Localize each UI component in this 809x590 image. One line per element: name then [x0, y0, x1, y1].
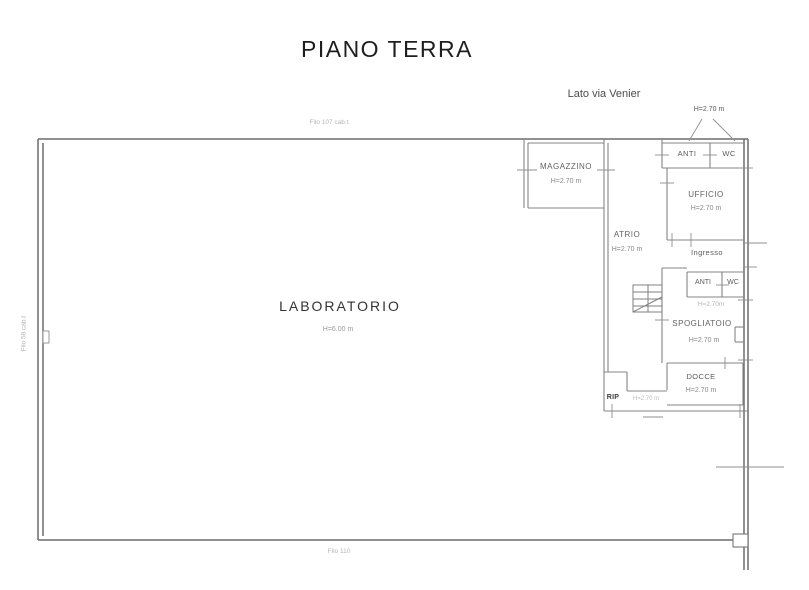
room-label-laboratorio: LABORATORIO — [279, 299, 401, 314]
height-note-mid-block: H=2.70m — [698, 301, 725, 308]
room-label-rip: RIP — [607, 394, 620, 402]
floor-plan-page: PIANO TERRA Lato via Venier H=2.70 m Fil… — [0, 0, 809, 590]
room-label-anti-mid: ANTI — [695, 279, 711, 287]
filo-annotation-top: Filo 107 cab.t — [309, 119, 348, 126]
room-label-magazzino: MAGAZZINO — [540, 163, 592, 172]
room-height-atrio: H=2.70 m — [612, 246, 643, 254]
page-title: PIANO TERRA — [301, 37, 473, 62]
room-height-laboratorio: H=6.00 m — [323, 326, 354, 334]
room-height-magazzino: H=2.70 m — [551, 178, 582, 186]
room-height-spogliatoio: H=2.70 m — [689, 337, 720, 345]
floor-plan-drawing — [0, 0, 809, 590]
room-label-atrio: ATRIO — [614, 231, 640, 240]
room-label-spogliatoio: SPOGLIATOIO — [672, 320, 731, 329]
room-label-anti-top: ANTI — [678, 150, 697, 158]
staircase-icon — [633, 285, 662, 312]
room-height-rip: H=2.70 m — [633, 396, 659, 403]
left-wall-nub — [43, 331, 49, 343]
wall-junction-box — [733, 534, 748, 547]
room-height-docce: H=2.70 m — [686, 387, 717, 395]
filo-annotation-bottom: Filo 110 — [328, 548, 351, 555]
room-label-wc-mid: WC — [727, 279, 739, 287]
filo-annotation-left: Filo 58 cab.t — [20, 304, 27, 364]
room-height-ufficio: H=2.70 m — [691, 205, 722, 213]
room-label-ufficio: UFFICIO — [688, 191, 724, 200]
leader-lines — [689, 119, 735, 141]
room-label-wc-top: WC — [722, 150, 735, 158]
room-label-ingresso: Ingresso — [691, 249, 723, 257]
outer-walls — [38, 139, 748, 570]
roof-height-note: H=2.70 m — [694, 106, 725, 114]
street-side-label: Lato via Venier — [568, 88, 641, 100]
room-label-docce: DOCCE — [686, 373, 715, 381]
